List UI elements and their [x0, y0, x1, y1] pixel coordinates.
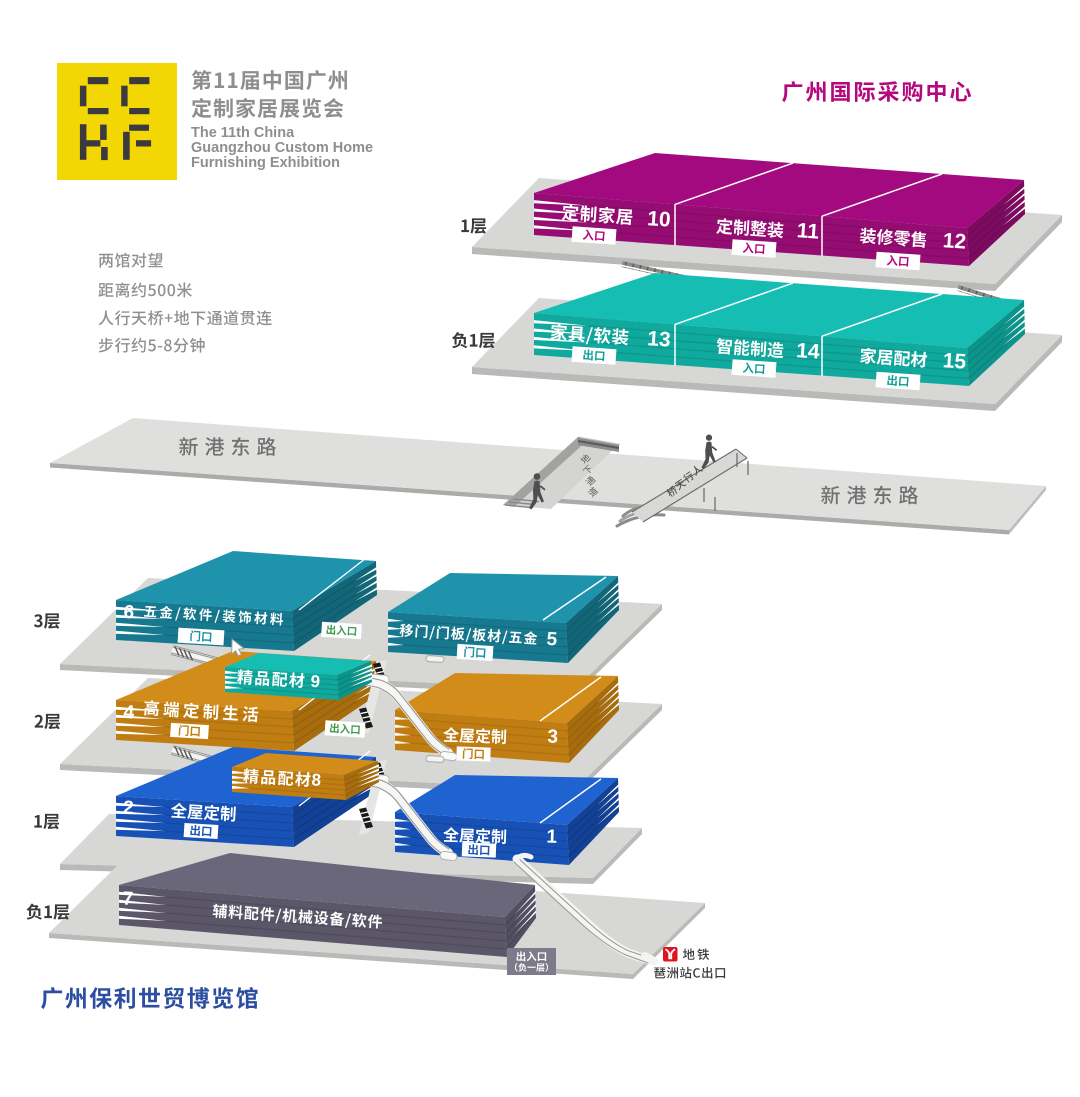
svg-text:14: 14	[795, 339, 820, 364]
svg-text:7: 7	[122, 888, 134, 910]
svg-text:1: 1	[546, 827, 558, 848]
svg-text:15: 15	[942, 349, 967, 374]
svg-text:4: 4	[123, 702, 135, 724]
svg-text:3: 3	[547, 727, 558, 748]
svg-text:10: 10	[646, 207, 671, 232]
svg-text:6: 6	[123, 602, 135, 624]
svg-text:9: 9	[310, 672, 321, 692]
svg-text:11: 11	[796, 219, 820, 244]
svg-text:The 11th China: The 11th China	[191, 125, 295, 141]
svg-text:Furnishing Exhibition: Furnishing Exhibition	[191, 155, 340, 171]
svg-text:Guangzhou Custom Home: Guangzhou Custom Home	[191, 140, 373, 156]
svg-text:2: 2	[122, 797, 134, 819]
svg-text:12: 12	[942, 229, 967, 254]
svg-text:8: 8	[311, 770, 322, 790]
svg-text:5: 5	[546, 629, 558, 651]
svg-text:13: 13	[646, 327, 671, 352]
